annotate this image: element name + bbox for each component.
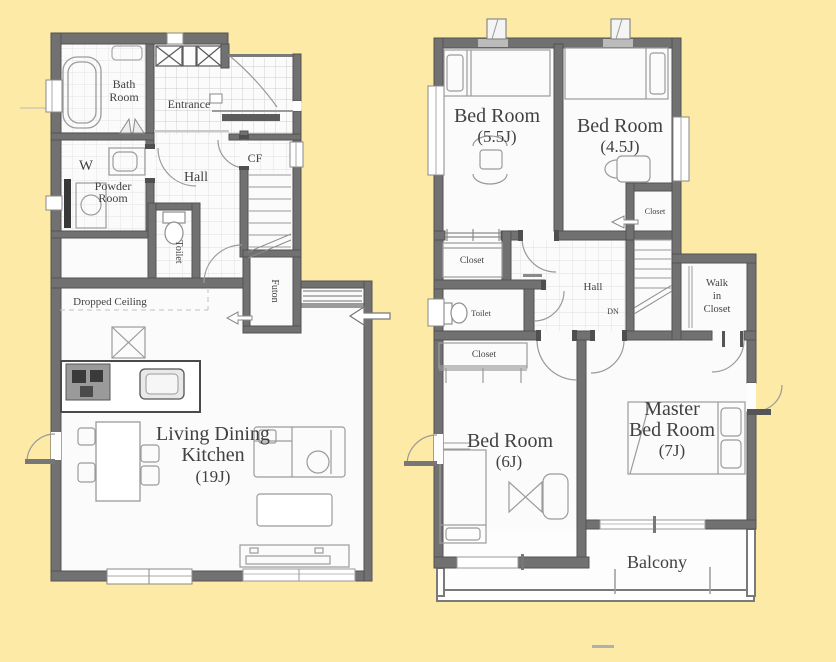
svg-text:Entrance: Entrance: [168, 97, 211, 111]
svg-text:W: W: [79, 158, 94, 174]
svg-text:Futon: Futon: [269, 279, 280, 302]
svg-text:(7J): (7J): [659, 441, 685, 460]
svg-text:Bath: Bath: [113, 77, 136, 91]
svg-text:Closet: Closet: [645, 207, 666, 216]
svg-text:Bed Room: Bed Room: [577, 115, 664, 137]
svg-text:(19J): (19J): [196, 467, 231, 486]
svg-text:Toilet: Toilet: [173, 240, 184, 263]
svg-text:Closet: Closet: [704, 304, 731, 315]
svg-text:Room: Room: [109, 90, 139, 104]
svg-text:Hall: Hall: [184, 170, 208, 185]
svg-text:Bed Room: Bed Room: [454, 105, 541, 127]
svg-text:Master: Master: [644, 398, 700, 420]
svg-text:Living Dining: Living Dining: [156, 423, 270, 445]
svg-text:(4.5J): (4.5J): [600, 137, 639, 156]
svg-text:CF: CF: [248, 151, 263, 165]
svg-text:Bed Room: Bed Room: [467, 430, 554, 452]
svg-text:(5.5J): (5.5J): [477, 127, 516, 146]
svg-text:Toilet: Toilet: [471, 308, 491, 318]
svg-text:Dropped Ceiling: Dropped Ceiling: [73, 296, 147, 308]
svg-text:(6J): (6J): [496, 452, 522, 471]
svg-text:Hall: Hall: [584, 281, 603, 293]
svg-text:Kitchen: Kitchen: [181, 444, 244, 466]
svg-text:Room: Room: [98, 191, 128, 205]
svg-text:Balcony: Balcony: [627, 552, 687, 572]
svg-text:in: in: [713, 291, 722, 302]
svg-text:Bed Room: Bed Room: [629, 419, 716, 441]
svg-text:Closet: Closet: [472, 350, 497, 360]
svg-text:Closet: Closet: [460, 256, 485, 266]
svg-text:Walk: Walk: [706, 278, 729, 289]
svg-text:DN: DN: [607, 307, 619, 316]
